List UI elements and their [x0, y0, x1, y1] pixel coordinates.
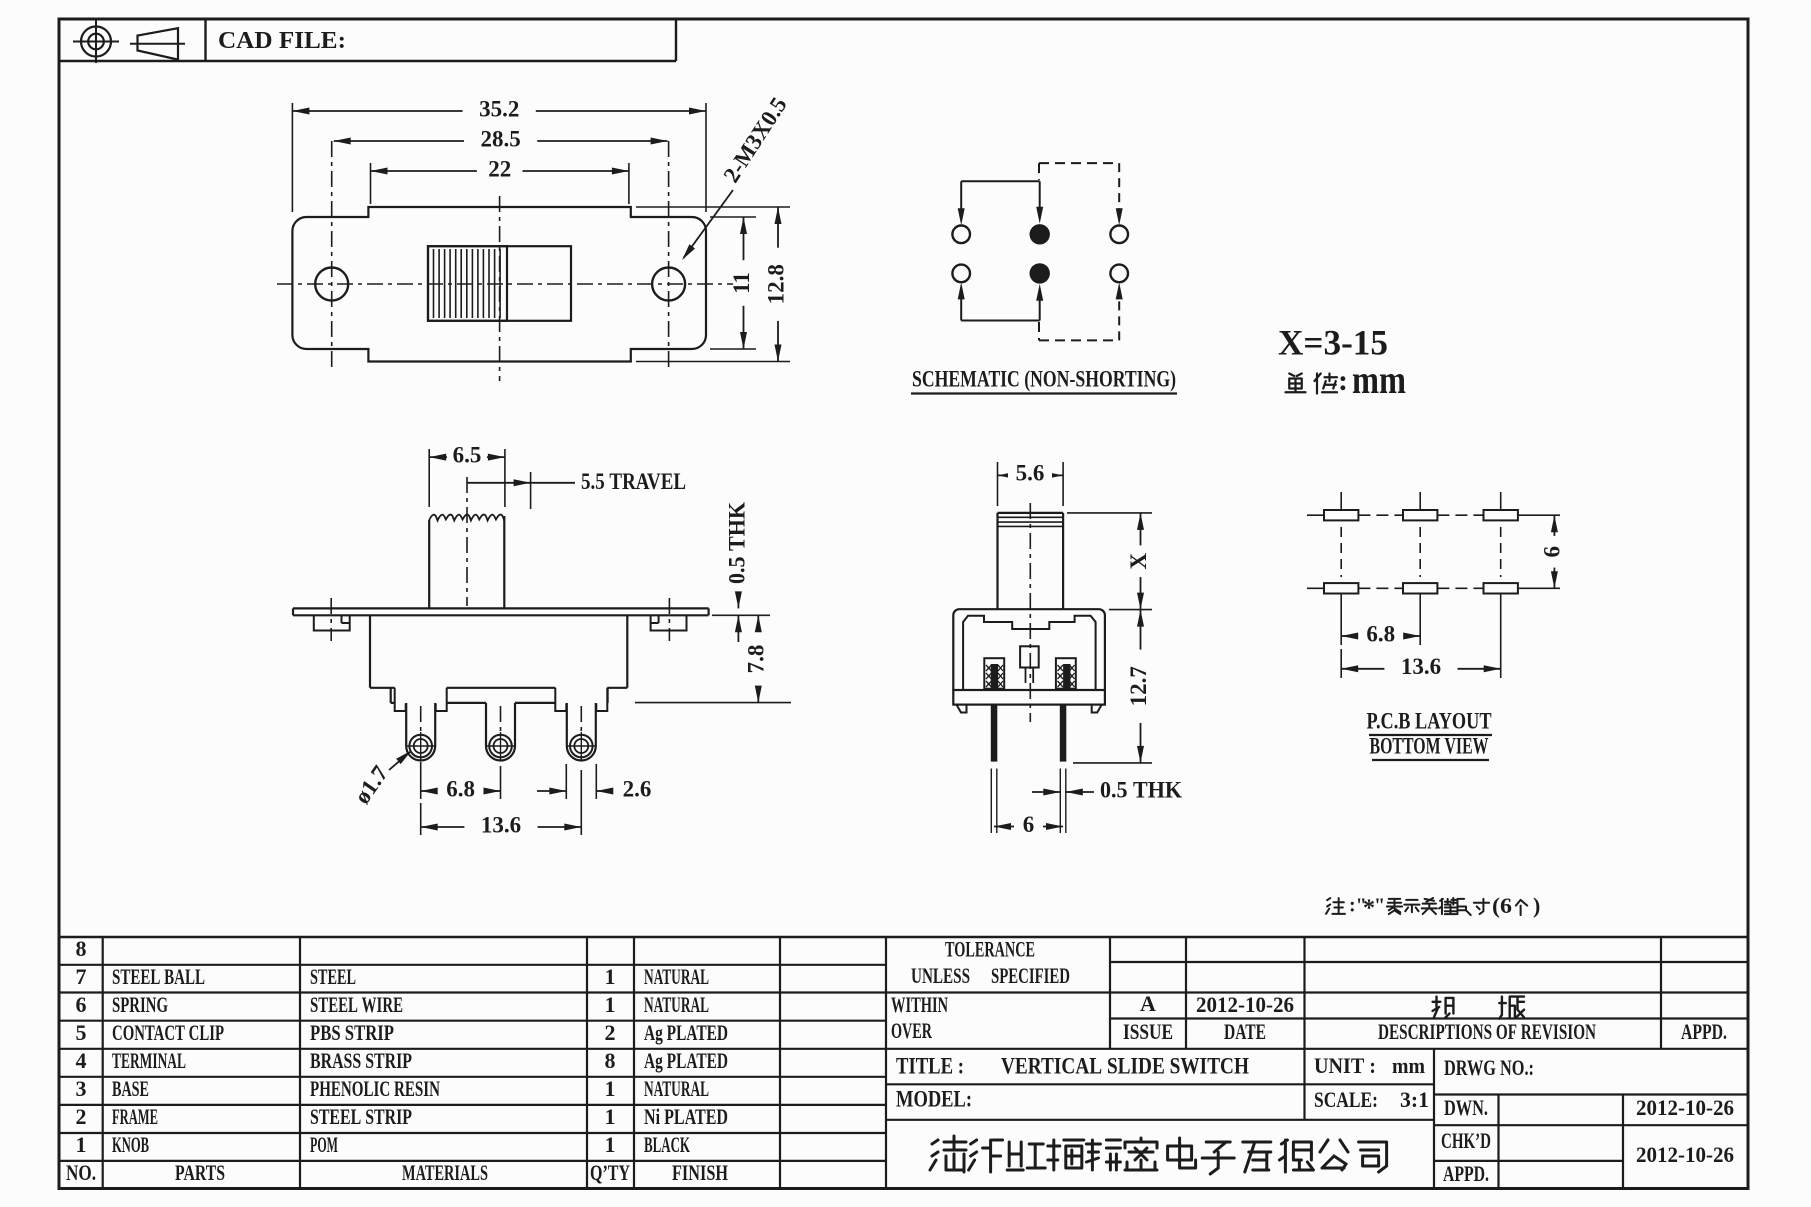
svg-text:): ): [1533, 893, 1540, 918]
svg-text:6.5: 6.5: [453, 442, 482, 467]
svg-text:NATURAL: NATURAL: [644, 964, 709, 989]
svg-text:CAD FILE:: CAD FILE:: [218, 28, 346, 54]
svg-text:MODEL:: MODEL:: [896, 1086, 972, 1111]
svg-text::: :: [1338, 364, 1348, 397]
svg-text:8: 8: [76, 936, 87, 961]
svg-text:13.6: 13.6: [481, 812, 521, 837]
svg-text:5: 5: [76, 1020, 87, 1045]
svg-text:0.5 THK: 0.5 THK: [1100, 777, 1182, 802]
svg-text:PHENOLIC RESIN: PHENOLIC RESIN: [310, 1076, 440, 1101]
svg-text:STEEL STRIP: STEEL STRIP: [310, 1104, 412, 1129]
svg-text:APPD.: APPD.: [1443, 1161, 1489, 1186]
svg-text:7: 7: [76, 964, 87, 989]
svg-text:12.8: 12.8: [763, 264, 788, 304]
svg-text:BASE: BASE: [112, 1076, 149, 1101]
svg-text:NATURAL: NATURAL: [644, 992, 709, 1017]
svg-text:6: 6: [1540, 546, 1565, 558]
svg-text:6.8: 6.8: [446, 776, 475, 801]
svg-text:VERTICAL SLIDE SWITCH: VERTICAL SLIDE SWITCH: [1001, 1053, 1249, 1078]
svg-text:mm: mm: [1352, 357, 1406, 402]
svg-text:2: 2: [76, 1104, 87, 1129]
svg-text:SCHEMATIC (NON-SHORTING): SCHEMATIC (NON-SHORTING): [912, 366, 1176, 392]
svg-text:": ": [1374, 895, 1385, 917]
svg-text:BLACK: BLACK: [644, 1132, 690, 1157]
svg-text:mm: mm: [1392, 1053, 1425, 1078]
svg-text:7.8: 7.8: [744, 645, 769, 674]
svg-text:1: 1: [605, 964, 616, 989]
svg-text:8: 8: [605, 1048, 616, 1073]
svg-text:DRWG NO.:: DRWG NO.:: [1444, 1055, 1534, 1080]
svg-text:12.7: 12.7: [1126, 666, 1151, 706]
svg-text:PBS STRIP: PBS STRIP: [310, 1020, 394, 1045]
svg-text:NATURAL: NATURAL: [644, 1076, 709, 1101]
svg-text:1: 1: [605, 1132, 616, 1157]
svg-text:DWN.: DWN.: [1444, 1095, 1488, 1120]
svg-text:11: 11: [729, 272, 754, 294]
svg-text:FINISH: FINISH: [672, 1160, 728, 1185]
svg-text:6: 6: [76, 992, 87, 1017]
svg-text:WITHIN: WITHIN: [891, 992, 948, 1017]
svg-text:2012-10-26: 2012-10-26: [1636, 1095, 1734, 1120]
svg-text:2012-10-26: 2012-10-26: [1636, 1142, 1734, 1167]
svg-text:ISSUE: ISSUE: [1123, 1019, 1173, 1044]
svg-text:BRASS STRIP: BRASS STRIP: [310, 1048, 412, 1073]
svg-text:Ag PLATED: Ag PLATED: [644, 1048, 728, 1073]
svg-text:28.5: 28.5: [480, 126, 520, 151]
svg-text:MATERIALS: MATERIALS: [402, 1160, 488, 1185]
svg-text:6.8: 6.8: [1366, 621, 1395, 646]
svg-text:Q’TY: Q’TY: [590, 1160, 630, 1185]
svg-text:1: 1: [76, 1132, 87, 1157]
svg-text:22: 22: [488, 156, 511, 181]
svg-text:SPECIFIED: SPECIFIED: [991, 963, 1070, 988]
svg-text:SPRING: SPRING: [112, 992, 168, 1017]
svg-text:SCALE:: SCALE:: [1314, 1087, 1378, 1112]
svg-text:Ag PLATED: Ag PLATED: [644, 1020, 728, 1045]
svg-text:0.5 THK: 0.5 THK: [724, 502, 749, 584]
svg-text:1: 1: [605, 1104, 616, 1129]
svg-text:UNIT :: UNIT :: [1314, 1053, 1376, 1078]
svg-text:35.2: 35.2: [479, 96, 519, 121]
svg-text:3:1: 3:1: [1400, 1087, 1429, 1112]
svg-text:Ni PLATED: Ni PLATED: [644, 1104, 728, 1129]
svg-text:2: 2: [605, 1020, 616, 1045]
svg-text:CONTACT CLIP: CONTACT CLIP: [112, 1020, 224, 1045]
svg-text:13.6: 13.6: [1401, 654, 1441, 679]
svg-text:KNOB: KNOB: [112, 1132, 149, 1157]
svg-text:2012-10-26: 2012-10-26: [1196, 992, 1294, 1017]
svg-text:X: X: [1126, 553, 1151, 570]
svg-text:TITLE :: TITLE :: [896, 1053, 964, 1078]
svg-text:2.6: 2.6: [623, 776, 652, 801]
svg-text:5.6: 5.6: [1016, 461, 1045, 486]
svg-text:PARTS: PARTS: [175, 1160, 225, 1185]
svg-text:1: 1: [605, 992, 616, 1017]
svg-text:NO.: NO.: [66, 1160, 96, 1185]
svg-text:(6: (6: [1492, 893, 1512, 918]
svg-text:TOLERANCE: TOLERANCE: [945, 937, 1035, 962]
svg-text:CHK’D: CHK’D: [1441, 1128, 1491, 1153]
svg-text:DESCRIPTIONS OF REVISION: DESCRIPTIONS OF REVISION: [1378, 1019, 1596, 1044]
svg-text:P.C.B LAYOUT: P.C.B LAYOUT: [1367, 708, 1492, 733]
svg-text:OVER: OVER: [891, 1018, 933, 1043]
svg-text:FRAME: FRAME: [112, 1104, 158, 1129]
svg-text:3: 3: [76, 1076, 87, 1101]
svg-text:APPD.: APPD.: [1681, 1019, 1727, 1044]
svg-text:5.5 TRAVEL: 5.5 TRAVEL: [581, 469, 686, 494]
svg-text:6: 6: [1023, 812, 1035, 837]
svg-text:1: 1: [605, 1076, 616, 1101]
svg-text:POM: POM: [310, 1132, 338, 1157]
svg-text:UNLESS: UNLESS: [911, 963, 970, 988]
svg-text:BOTTOM VIEW: BOTTOM VIEW: [1370, 733, 1489, 758]
svg-text:4: 4: [76, 1048, 87, 1073]
svg-text:STEEL: STEEL: [310, 964, 356, 989]
svg-text:DATE: DATE: [1224, 1019, 1266, 1044]
svg-text:STEEL WIRE: STEEL WIRE: [310, 992, 403, 1017]
svg-text:STEEL BALL: STEEL BALL: [112, 964, 205, 989]
svg-text:TERMINAL: TERMINAL: [112, 1048, 186, 1073]
svg-text:A: A: [1140, 991, 1156, 1016]
